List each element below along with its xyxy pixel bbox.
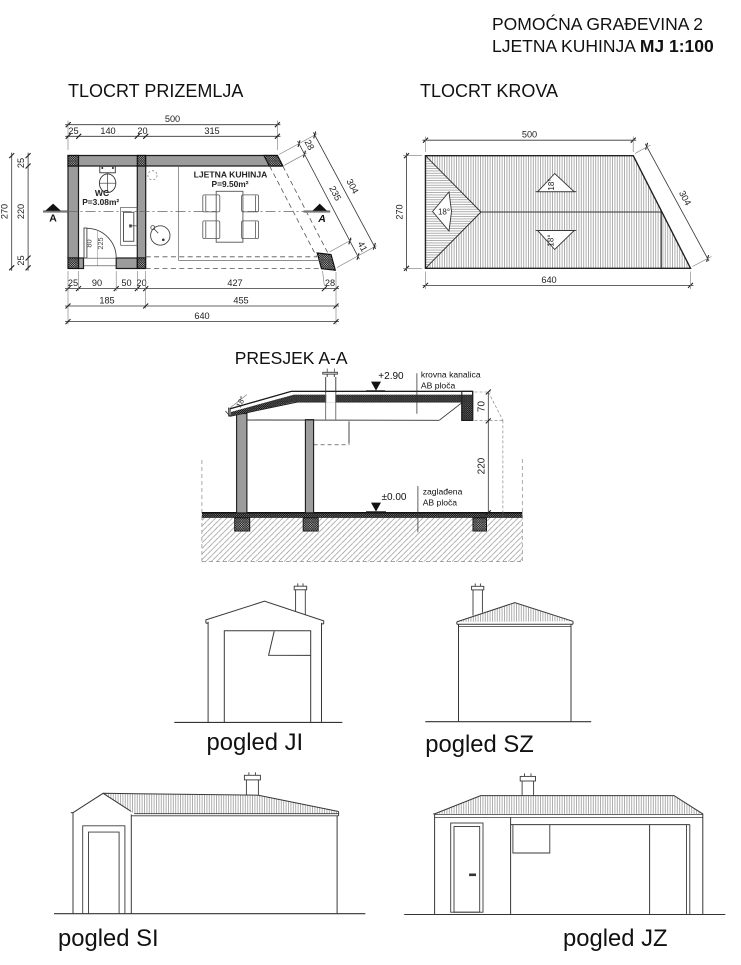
svg-text:AB ploča: AB ploča	[423, 498, 458, 508]
svg-text:pogled JZ: pogled JZ	[563, 925, 668, 952]
svg-text:70: 70	[476, 401, 487, 413]
svg-text:krovna kanalica: krovna kanalica	[421, 370, 481, 380]
svg-text:80: 80	[85, 239, 94, 247]
svg-text:270: 270	[0, 204, 10, 219]
svg-text:25: 25	[16, 158, 26, 168]
svg-text:25: 25	[16, 255, 26, 265]
svg-text:zaglađena: zaglađena	[423, 487, 463, 497]
svg-text:AB ploča: AB ploča	[421, 381, 456, 391]
svg-text:140: 140	[100, 126, 115, 136]
svg-text:TLOCRT KROVA: TLOCRT KROVA	[420, 81, 558, 101]
svg-text:A: A	[49, 213, 57, 225]
svg-text:pogled SI: pogled SI	[58, 925, 159, 952]
svg-text:POMOĆNA GRAĐEVINA 2: POMOĆNA GRAĐEVINA 2	[492, 13, 703, 34]
svg-text:225: 225	[96, 237, 105, 249]
svg-text:TLOCRT PRIZEMLJA: TLOCRT PRIZEMLJA	[68, 81, 243, 101]
svg-text:640: 640	[194, 311, 209, 321]
svg-text:500: 500	[165, 114, 180, 124]
svg-text:270: 270	[395, 204, 405, 219]
svg-text:A: A	[317, 213, 326, 225]
svg-text:25: 25	[68, 126, 78, 136]
svg-text:25: 25	[68, 278, 78, 288]
svg-text:18°: 18°	[547, 178, 556, 190]
svg-text:LJETNA KUHINJA MJ 1:100: LJETNA KUHINJA MJ 1:100	[492, 36, 714, 56]
svg-text:220: 220	[16, 204, 26, 219]
svg-text:P=3.08m²: P=3.08m²	[82, 197, 119, 207]
svg-text:±0.00: ±0.00	[382, 492, 407, 503]
svg-text:P=9.50m²: P=9.50m²	[211, 179, 248, 189]
svg-text:315: 315	[204, 126, 219, 136]
svg-text:90: 90	[92, 278, 102, 288]
svg-text:PRESJEK A-A: PRESJEK A-A	[235, 348, 348, 368]
svg-text:640: 640	[541, 275, 556, 285]
svg-text:427: 427	[227, 278, 242, 288]
svg-text:18°: 18°	[547, 234, 556, 246]
svg-text:455: 455	[233, 296, 248, 306]
svg-text:500: 500	[522, 130, 537, 140]
svg-text:185: 185	[99, 296, 114, 306]
svg-text:20: 20	[137, 126, 147, 136]
svg-text:pogled JI: pogled JI	[207, 729, 304, 756]
svg-text:+2.90: +2.90	[378, 371, 404, 382]
svg-text:LJETNA KUHINJA: LJETNA KUHINJA	[194, 170, 268, 180]
svg-text:18°: 18°	[438, 208, 450, 217]
svg-text:20: 20	[136, 278, 146, 288]
svg-text:220: 220	[476, 457, 487, 474]
svg-text:28: 28	[325, 278, 335, 288]
svg-text:pogled SZ: pogled SZ	[425, 731, 533, 758]
svg-text:50: 50	[121, 278, 131, 288]
